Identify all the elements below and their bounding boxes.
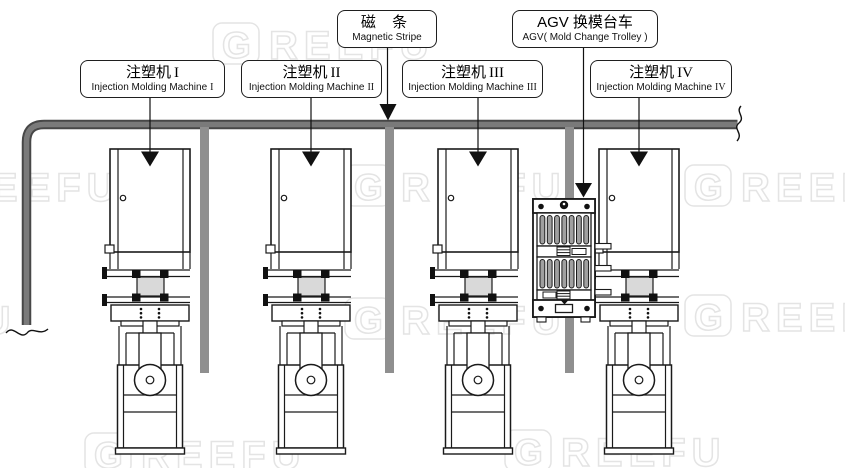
- roller-conveyor-icon: [540, 216, 589, 245]
- machine-1-title-zh: 注塑机I: [126, 64, 179, 82]
- diagram-canvas: G REEFU: [0, 0, 845, 468]
- machine-4: [591, 149, 679, 454]
- label-machine-4: 注塑机IV Injection Molding MachineIV: [590, 60, 732, 98]
- machine-2-title-zh: 注塑机II: [282, 64, 340, 82]
- machine-4-title-en: Injection Molding MachineIV: [596, 82, 725, 94]
- label-magnetic-stripe: 磁 条 Magnetic Stripe: [337, 10, 437, 48]
- agv-trolley-title-zh: AGV 换模台车: [537, 14, 633, 32]
- machine-1-title-en: Injection Molding MachineI: [92, 82, 214, 94]
- agv-trolley-title-en: AGV( Mold Change Trolley ): [522, 32, 647, 44]
- label-agv-trolley: AGV 换模台车 AGV( Mold Change Trolley ): [512, 10, 658, 48]
- machine-4-title-zh: 注塑机IV: [629, 64, 693, 82]
- magnetic-stripe-title-zh: 磁 条: [361, 14, 413, 32]
- roller-conveyor-icon: [540, 260, 589, 289]
- label-machine-1: 注塑机I Injection Molding MachineI: [80, 60, 225, 98]
- machine-2: [263, 149, 351, 454]
- machine-3-title-zh: 注塑机III: [441, 64, 504, 82]
- machine-3-title-en: Injection Molding MachineIII: [408, 82, 537, 94]
- magnetic-stripe-title-en: Magnetic Stripe: [352, 32, 421, 44]
- label-machine-2: 注塑机II Injection Molding MachineII: [241, 60, 382, 98]
- down-arrow-icon: [575, 183, 592, 198]
- machine-1: [102, 149, 190, 454]
- label-machine-3: 注塑机III Injection Molding MachineIII: [402, 60, 543, 98]
- machine-2-title-en: Injection Molding MachineII: [249, 82, 374, 94]
- down-arrow-icon: [380, 104, 397, 121]
